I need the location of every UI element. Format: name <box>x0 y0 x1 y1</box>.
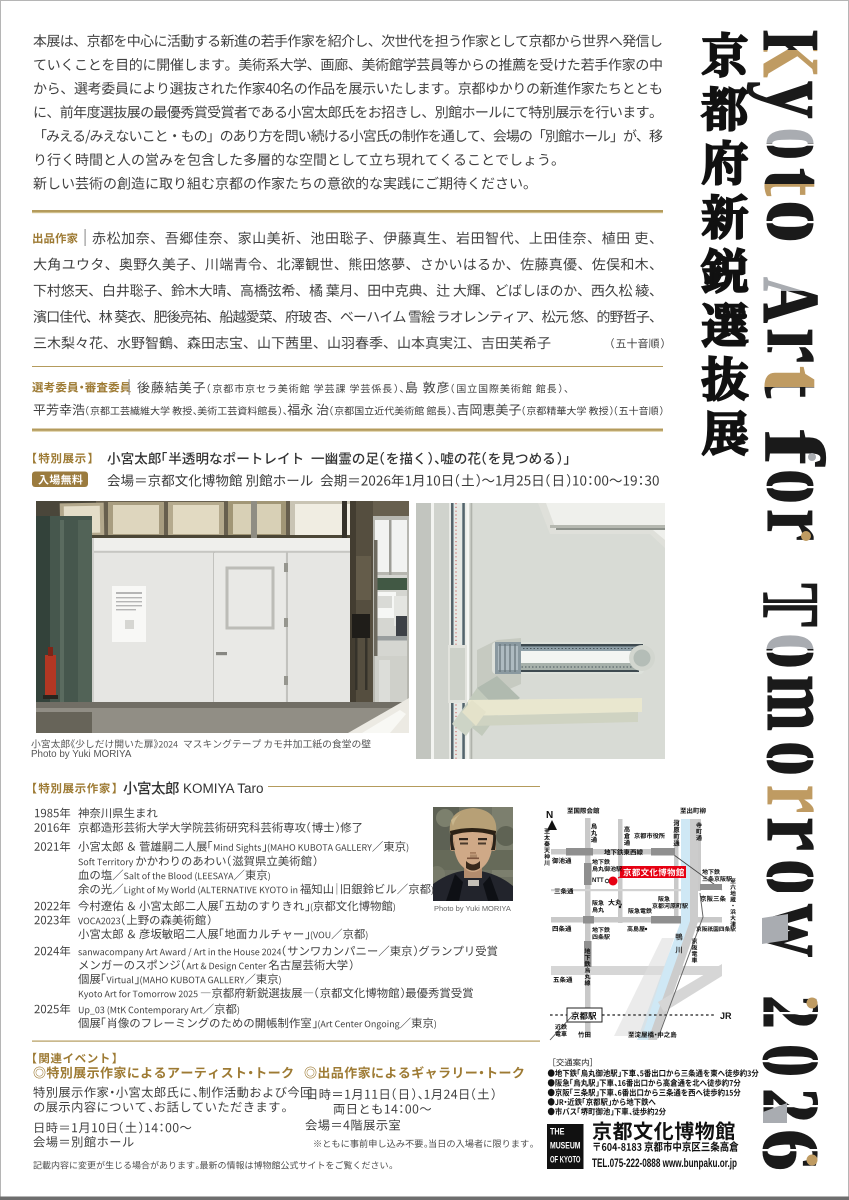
svg-text:NTT: NTT <box>592 878 604 884</box>
svg-text:f: f <box>747 430 841 467</box>
svg-text:y: y <box>747 81 849 119</box>
svg-text:N: N <box>546 810 553 821</box>
svg-text:r: r <box>747 785 849 813</box>
svg-text:K: K <box>746 30 834 78</box>
svg-text:Photo by Yuki MORIYA: Photo by Yuki MORIYA <box>31 749 132 760</box>
svg-text:r: r <box>747 817 849 851</box>
svg-text:t: t <box>747 168 841 196</box>
svg-text:r: r <box>747 509 849 541</box>
svg-text:A: A <box>746 277 834 323</box>
svg-text:KOMIYA Taro: KOMIYA Taro <box>183 781 264 796</box>
svg-text:THE: THE <box>550 1127 565 1138</box>
svg-text:t: t <box>747 366 841 398</box>
svg-text:MUSEUM: MUSEUM <box>550 1141 581 1152</box>
svg-text:Photo by Yuki MORIYA: Photo by Yuki MORIYA <box>434 904 511 913</box>
svg-text:m: m <box>747 675 849 731</box>
svg-text:OF KYOTO: OF KYOTO <box>550 1155 581 1166</box>
svg-text:JR: JR <box>720 1011 732 1021</box>
svg-text:TEL.075-222-0888 www.bunpaku.o: TEL.075-222-0888 www.bunpaku.or.jp <box>592 1156 737 1170</box>
